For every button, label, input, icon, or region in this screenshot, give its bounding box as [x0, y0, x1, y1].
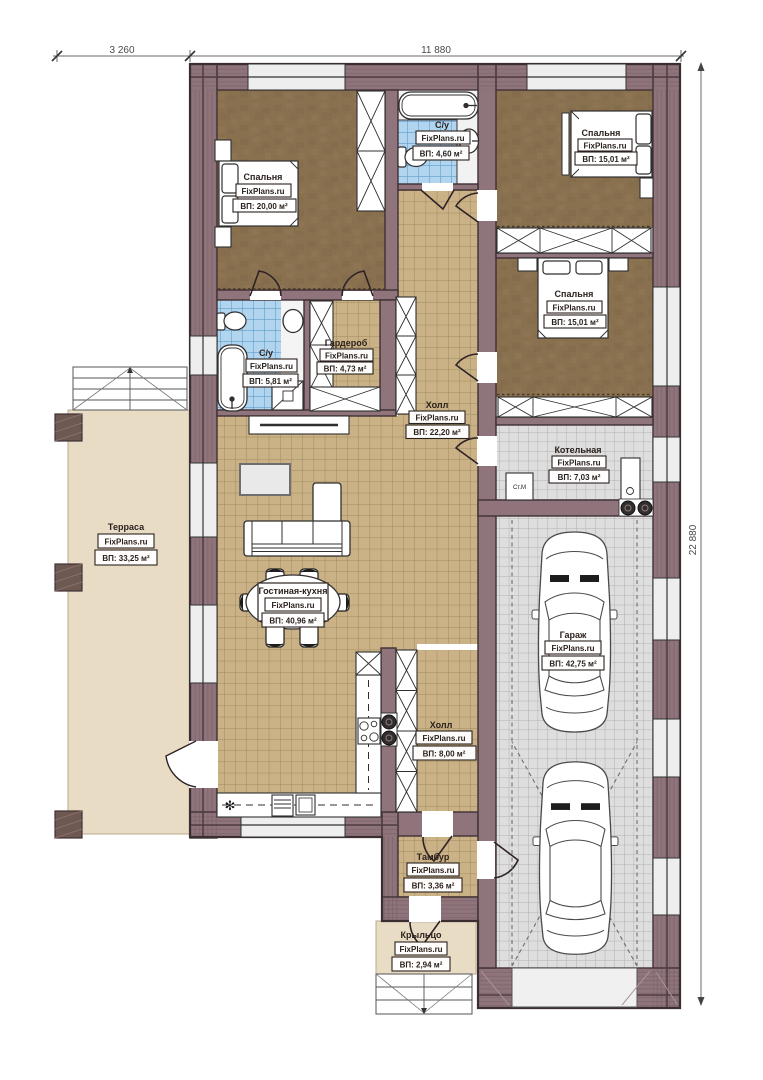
svg-text:FixPlans.ru: FixPlans.ru	[551, 644, 594, 653]
svg-text:FixPlans.ru: FixPlans.ru	[399, 945, 442, 954]
svg-text:Холл: Холл	[426, 400, 449, 410]
svg-text:ВП: 4,73 м²: ВП: 4,73 м²	[324, 365, 367, 374]
svg-text:FixPlans.ru: FixPlans.ru	[583, 142, 626, 151]
svg-text:Тамбур: Тамбур	[417, 852, 450, 862]
svg-text:Котельная: Котельная	[554, 445, 601, 455]
svg-text:ВП: 3,36 м²: ВП: 3,36 м²	[412, 882, 455, 891]
svg-text:Гараж: Гараж	[560, 630, 587, 640]
svg-text:✻: ✻	[225, 798, 236, 813]
svg-text:ВП: 7,03 м²: ВП: 7,03 м²	[558, 473, 601, 482]
svg-text:С/у: С/у	[259, 348, 273, 358]
svg-text:Крыльцо: Крыльцо	[401, 930, 442, 940]
svg-text:ВП: 40,96 м²: ВП: 40,96 м²	[269, 617, 317, 626]
svg-text:FixPlans.ru: FixPlans.ru	[325, 352, 368, 361]
svg-text:FixPlans.ru: FixPlans.ru	[411, 866, 454, 875]
svg-text:FixPlans.ru: FixPlans.ru	[422, 734, 465, 743]
svg-text:11 880: 11 880	[421, 45, 451, 56]
svg-text:Гардероб: Гардероб	[325, 338, 368, 348]
svg-text:Спальня: Спальня	[244, 172, 283, 182]
svg-text:ВП: 33,25 м²: ВП: 33,25 м²	[102, 554, 150, 563]
svg-text:ВП: 8,00 м²: ВП: 8,00 м²	[423, 750, 466, 759]
svg-text:FixPlans.ru: FixPlans.ru	[104, 538, 147, 547]
svg-text:Спальня: Спальня	[582, 128, 621, 138]
svg-text:Терраса: Терраса	[108, 522, 145, 532]
svg-text:С/у: С/у	[435, 120, 449, 130]
svg-text:ВП: 22,20 м²: ВП: 22,20 м²	[413, 428, 461, 437]
svg-text:FixPlans.ru: FixPlans.ru	[557, 459, 600, 468]
svg-text:ВП: 20,00 м²: ВП: 20,00 м²	[240, 202, 288, 211]
svg-text:Ст.М: Ст.М	[513, 485, 526, 491]
svg-text:FixPlans.ru: FixPlans.ru	[241, 187, 284, 196]
svg-text:Гостиная-кухня: Гостиная-кухня	[259, 586, 328, 596]
svg-text:ВП: 15,01 м²: ВП: 15,01 м²	[551, 318, 599, 327]
svg-text:Спальня: Спальня	[555, 289, 594, 299]
svg-text:ВП: 2,94 м²: ВП: 2,94 м²	[400, 961, 443, 970]
svg-text:FixPlans.ru: FixPlans.ru	[271, 601, 314, 610]
svg-text:22 880: 22 880	[688, 524, 699, 555]
svg-text:FixPlans.ru: FixPlans.ru	[421, 134, 464, 143]
svg-text:Холл: Холл	[430, 720, 453, 730]
svg-text:ВП: 15,01 м²: ВП: 15,01 м²	[582, 155, 630, 164]
svg-text:3 260: 3 260	[109, 45, 134, 56]
svg-text:FixPlans.ru: FixPlans.ru	[415, 414, 458, 423]
svg-text:ВП: 4,60 м²: ВП: 4,60 м²	[420, 150, 463, 159]
svg-text:FixPlans.ru: FixPlans.ru	[250, 362, 293, 371]
svg-text:FixPlans.ru: FixPlans.ru	[552, 304, 595, 313]
svg-text:ВП: 5,81 м²: ВП: 5,81 м²	[249, 377, 292, 386]
svg-text:ВП: 42,75 м²: ВП: 42,75 м²	[549, 660, 597, 669]
